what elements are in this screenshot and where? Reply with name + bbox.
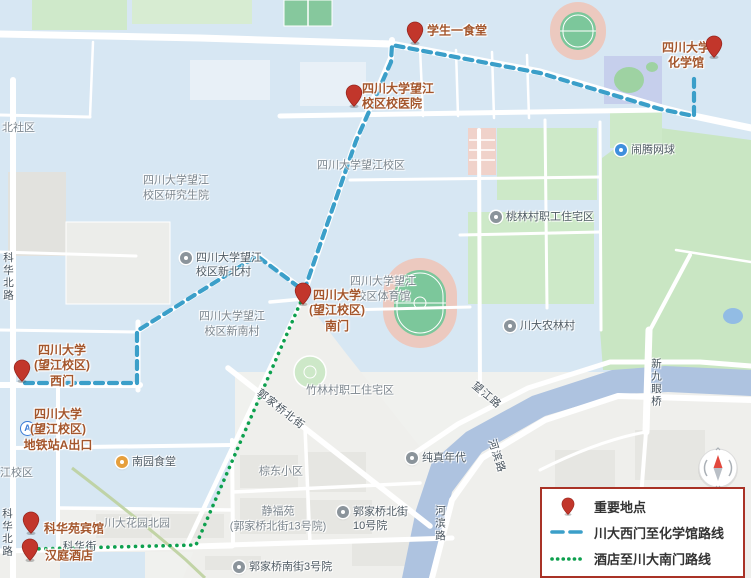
poi-label: 桃林村职工住宅区: [506, 210, 594, 224]
canteen1-label: 学生一食堂: [427, 23, 487, 38]
poi-label: 川大农林村: [520, 319, 575, 333]
legend-pin-label: 重要地点: [594, 497, 646, 516]
legend-item-green-route: 酒店至川大南门路线: [542, 549, 743, 568]
residence-icon: [490, 211, 502, 223]
map-app[interactable]: 北社区 四川大学望江 校区研究生院 四川大学望江校区 四川大学望江 校区体育馆 …: [0, 0, 751, 578]
legend-dashed-line-icon: [542, 528, 594, 536]
hospital-label: 四川大学望江 校区校医院: [362, 82, 434, 113]
chemistry-label: 四川大学 化学馆: [662, 41, 710, 72]
poi-nanyuan-canteen[interactable]: 南园食堂: [116, 455, 176, 469]
poi-label: 闹腾网球: [631, 143, 675, 157]
residence-icon: [337, 506, 349, 518]
hanting-hotel-label: 汉庭酒店: [45, 548, 93, 563]
poi-nonglin[interactable]: 川大农林村: [504, 319, 575, 333]
pin-south-gate[interactable]: [294, 282, 312, 306]
south-gate-label: 四川大学 (望江校区) 南门: [309, 288, 365, 334]
road-label-hebin-2: 河滨路: [433, 505, 448, 543]
kehuayuan-hotel-label: 科华苑宾馆: [44, 521, 104, 536]
road-label-kehua-north-1: 科华北路: [1, 252, 16, 302]
road-label-kehua-north-2: 科华北路: [0, 508, 15, 558]
legend-blue-route-label: 川大西门至化学馆路线: [594, 523, 724, 542]
legend-item-blue-route: 川大西门至化学馆路线: [542, 523, 743, 542]
legend-item-places: 重要地点: [542, 497, 743, 516]
pin-hospital[interactable]: [345, 84, 363, 108]
garden-circle: [294, 356, 326, 388]
poi-guojiaqiao-10[interactable]: 郭家桥北街 10号院: [337, 505, 408, 534]
park-pond: [723, 308, 743, 324]
metro-exit-label: 四川大学 (望江校区) 地铁站A出口: [24, 407, 93, 453]
poi-label: 南园食堂: [132, 455, 176, 469]
dormitory-block: [468, 128, 496, 175]
tennis-icon: [615, 144, 627, 156]
poi-label: 纯真年代: [422, 451, 466, 465]
pin-west-gate[interactable]: [13, 359, 31, 383]
restaurant-icon: [116, 456, 128, 468]
poi-naoteng-tennis[interactable]: 闹腾网球: [615, 143, 675, 157]
residence-icon: [233, 561, 245, 573]
poi-taolin[interactable]: 桃林村职工住宅区: [490, 210, 594, 224]
residence-icon: [180, 252, 192, 264]
residence-icon: [504, 320, 516, 332]
poi-label: 郭家桥北街 10号院: [353, 505, 408, 534]
legend-pin-icon: [542, 497, 594, 516]
poi-guojiaqiao-nan[interactable]: 郭家桥南街3号院: [233, 560, 332, 574]
pin-canteen1[interactable]: [406, 21, 424, 45]
legend-panel: 重要地点 川大西门至化学馆路线 酒店至川大南门路线: [540, 487, 745, 578]
poi-label: 四川大学望江 校区新北村: [196, 251, 262, 280]
poi-chunzhen[interactable]: 纯真年代: [406, 451, 466, 465]
river-park: [600, 126, 751, 370]
poi-xinbeicun[interactable]: 四川大学望江 校区新北村: [180, 251, 262, 280]
legend-dotted-line-icon: [542, 555, 594, 563]
west-gate-label: 四川大学 (望江校区) 西门: [34, 343, 90, 389]
legend-green-route-label: 酒店至川大南门路线: [594, 549, 711, 568]
pin-hanting-hotel[interactable]: [21, 538, 39, 562]
pin-kehuayuan-hotel[interactable]: [22, 511, 40, 535]
pin-chemistry[interactable]: [705, 35, 723, 59]
poi-label: 郭家桥南街3号院: [249, 560, 332, 574]
place-icon: [406, 452, 418, 464]
road-label-xinjiuyanqiao: 新九眼桥: [649, 358, 664, 408]
